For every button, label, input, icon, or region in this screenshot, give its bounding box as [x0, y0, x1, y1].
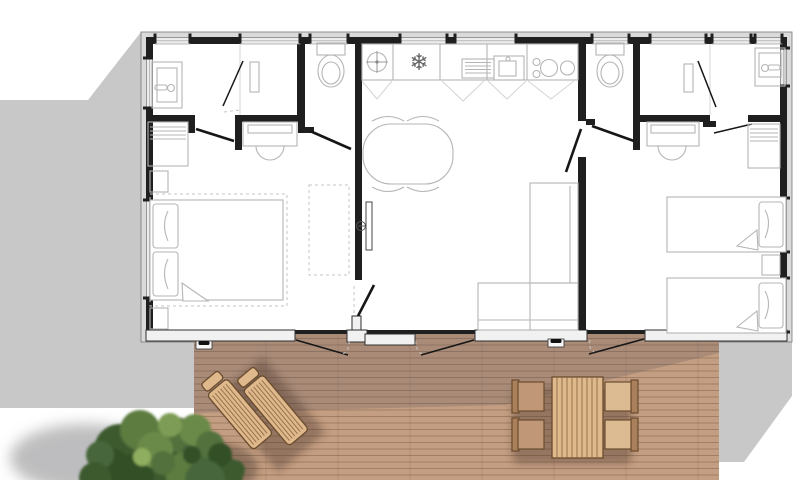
entrance-step [548, 339, 564, 347]
window-frame-tick [628, 34, 631, 44]
window-frame-tick [454, 34, 457, 44]
twin-bed-1 [667, 197, 786, 252]
living-bedroom-partition [578, 157, 586, 330]
window-frame-tick [154, 34, 157, 44]
freezer-icon: ❄ [409, 50, 428, 76]
floor-plan-scene: ❄ [0, 0, 796, 480]
outdoor-table [552, 377, 603, 458]
outdoor-chair-band [631, 380, 638, 413]
sliding-door-threshold [365, 334, 415, 345]
entrance-step [196, 341, 212, 349]
wardrobe-left-wall [235, 115, 305, 122]
double-bed [150, 200, 283, 301]
outdoor-chair-band [631, 418, 638, 451]
window-frame-tick [309, 34, 312, 44]
window-frame-tick [705, 34, 708, 44]
window-frame-tick [649, 34, 652, 44]
window-frame-tick [515, 34, 518, 44]
outdoor-chair-2 [518, 420, 544, 449]
twin-bed-2 [667, 278, 786, 333]
building-shadow-right [719, 342, 792, 462]
window-frame-tick [239, 34, 242, 44]
window-frame-tick [446, 34, 449, 44]
outdoor-dining-set [512, 377, 638, 464]
wardrobe-right-wall [633, 115, 710, 122]
wc-left-wall [297, 37, 305, 115]
bathroom-left-wall [146, 115, 190, 122]
window-frame-tick [299, 34, 302, 44]
window-frame-tick [399, 34, 402, 44]
outdoor-chair-1 [518, 382, 544, 411]
outdoor-chair-3 [605, 382, 631, 411]
floor-plan-svg: ❄ [0, 0, 796, 480]
window-frame-tick [189, 34, 192, 44]
window-frame-tick [750, 34, 753, 44]
bathroom-right-wall [748, 115, 787, 122]
window-frame-tick [754, 34, 757, 44]
kitchen-bedroom-wall [355, 37, 362, 280]
window-frame-tick [347, 34, 350, 44]
wc-right-wall-b [633, 37, 640, 115]
house: ❄ [143, 34, 790, 356]
tree-foliage [151, 451, 175, 475]
tree-foliage [133, 448, 151, 466]
tree-foliage [225, 460, 245, 480]
tree-foliage [158, 413, 182, 437]
window-frame-tick [143, 57, 153, 60]
entrance-pier-base [347, 330, 367, 342]
wc-right-wall-a [578, 37, 586, 121]
window-frame-tick [711, 34, 714, 44]
window-frame-tick [591, 34, 594, 44]
window-frame-tick [781, 34, 784, 44]
outdoor-chair-4 [605, 420, 631, 449]
